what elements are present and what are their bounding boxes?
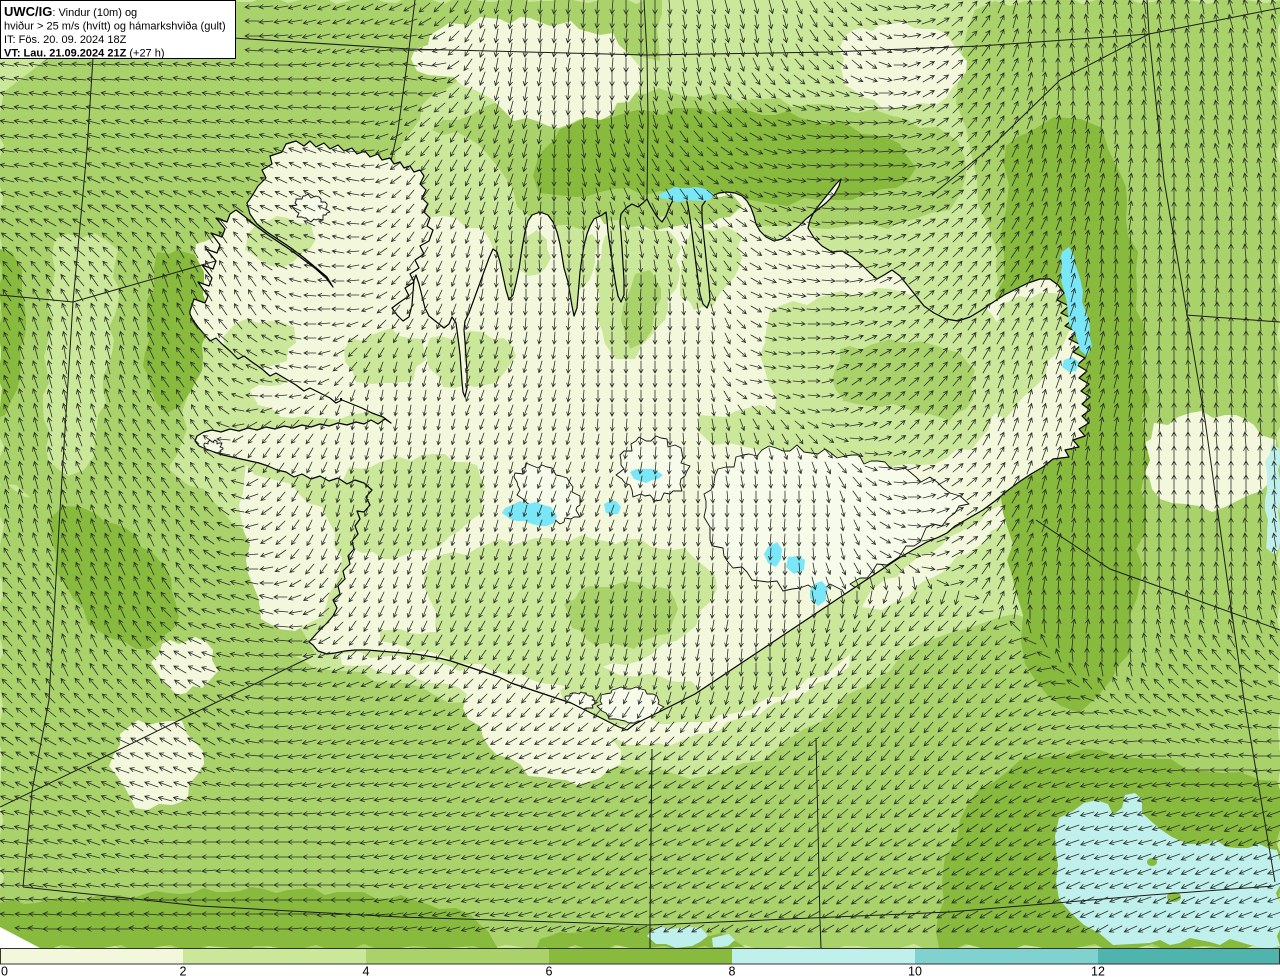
svg-text:12: 12 xyxy=(1091,965,1105,978)
svg-text:UWC/IG: Vindur (10m) og: UWC/IG: Vindur (10m) og xyxy=(4,4,137,19)
svg-text:8: 8 xyxy=(729,965,736,978)
svg-text:IT: Fös. 20. 09. 2024 18Z: IT: Fös. 20. 09. 2024 18Z xyxy=(4,34,127,46)
svg-text:4: 4 xyxy=(363,965,370,978)
svg-text:0: 0 xyxy=(1,965,8,978)
svg-text:hviður > 25 m/s (hvítt) og hám: hviður > 25 m/s (hvítt) og hámarkshviða … xyxy=(4,21,226,33)
svg-text:6: 6 xyxy=(546,965,553,978)
svg-text:VT: Lau. 21.09.2024 21Z (+27 h: VT: Lau. 21.09.2024 21Z (+27 h) xyxy=(4,48,165,60)
svg-text:10: 10 xyxy=(908,965,922,978)
svg-text:2: 2 xyxy=(180,965,187,978)
